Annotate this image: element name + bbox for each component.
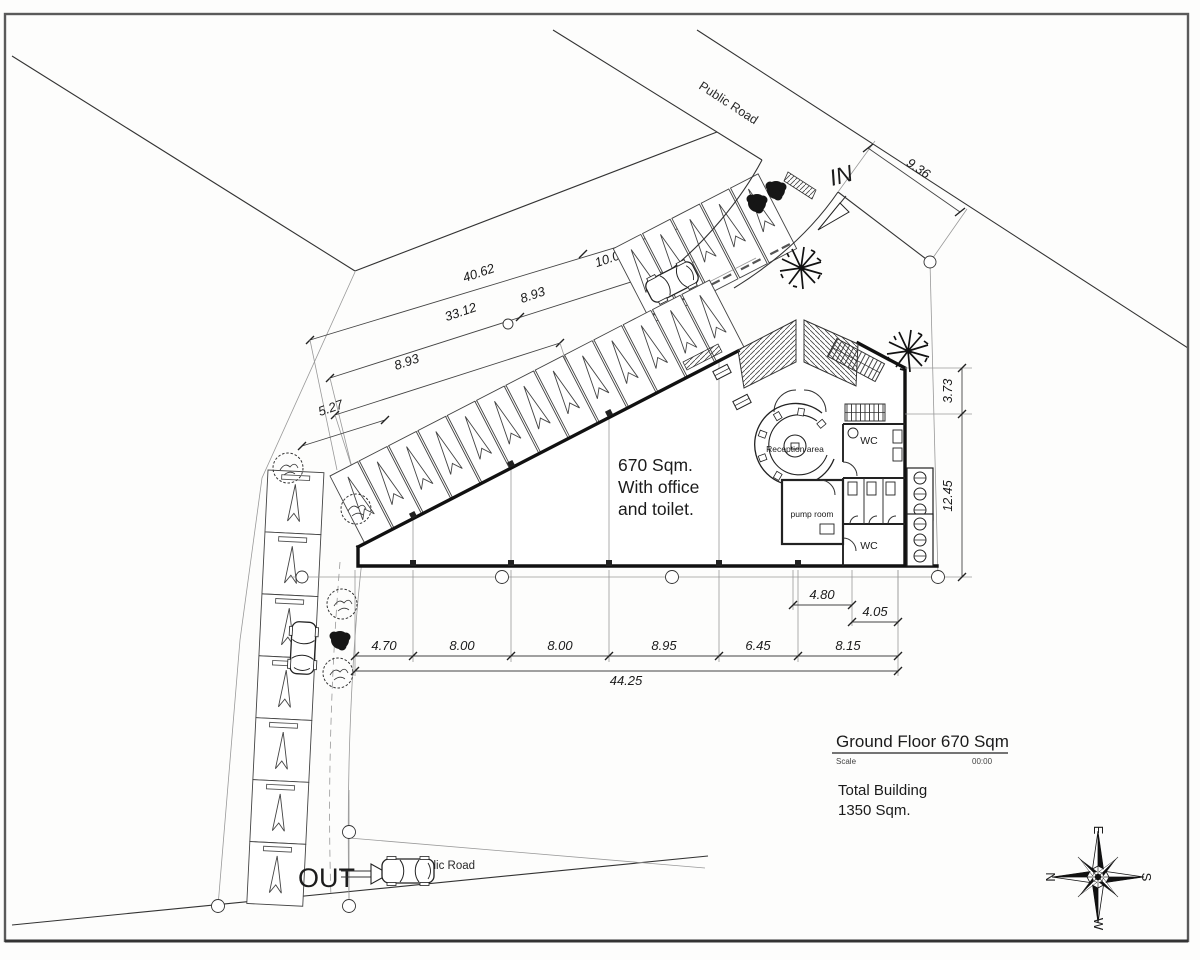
car-exit	[382, 857, 434, 886]
site-plan-drawing: 40.62 10.00 33.12 8.93 8.93 5.27 9.36	[0, 0, 1200, 960]
public-road-bottom	[12, 838, 708, 925]
dim-3-73: 3.73	[941, 379, 955, 403]
dim-8-15: 8.15	[835, 638, 861, 653]
dim-8-93-a: 8.93	[518, 283, 548, 306]
dim-8-00-a: 8.00	[449, 638, 475, 653]
stairs-right	[845, 404, 885, 421]
dimension-road-frontage: 9.36	[838, 141, 967, 262]
dim-5-27: 5.27	[316, 396, 346, 419]
dim-6-45: 6.45	[745, 638, 771, 653]
dim-4-70: 4.70	[371, 638, 397, 653]
pump-room-label: pump room	[791, 509, 834, 519]
title-block: Ground Floor 670 Sqm Scale 00:00 Total B…	[832, 732, 1009, 819]
dim-9-36: 9.36	[904, 155, 934, 182]
area-note-line3: and toilet.	[618, 499, 694, 519]
dim-44-25: 44.25	[610, 673, 643, 688]
dim-33-12: 33.12	[443, 299, 479, 324]
reception-label: Reception area	[766, 444, 824, 454]
dim-8-93-b: 8.93	[392, 350, 422, 373]
wc-lower-label: WC	[860, 540, 878, 552]
scale-label: Scale	[836, 757, 857, 766]
area-note-line1: 670 Sqm.	[618, 455, 693, 475]
sheet-title: Ground Floor 670 Sqm	[836, 732, 1009, 751]
total-building-label: Total Building	[838, 782, 927, 799]
compass-left-letter: N	[1043, 872, 1058, 881]
dim-8-95: 8.95	[651, 638, 677, 653]
total-building-area: 1350 Sqm.	[838, 802, 911, 819]
in-label: IN	[827, 160, 856, 191]
area-note-line2: With office	[618, 477, 699, 497]
out-label: OUT	[298, 863, 355, 893]
wc-upper-label: WC	[860, 435, 878, 447]
car-left-lane	[287, 621, 319, 674]
drawing-sheet: 40.62 10.00 33.12 8.93 8.93 5.27 9.36	[0, 0, 1200, 960]
compass-right-letter: S	[1139, 873, 1154, 882]
dim-4-80: 4.80	[809, 587, 835, 602]
dim-12-45: 12.45	[941, 480, 955, 511]
dim-8-00-b: 8.00	[547, 638, 573, 653]
public-road-top	[12, 30, 1188, 348]
dimension-chain-bottom: 4.70 8.00 8.00 8.95 6.45 8.15 44.25 4.80…	[290, 570, 940, 688]
area-note: 670 Sqm. With office and toilet.	[618, 455, 699, 519]
compass-top-letter: E	[1091, 826, 1106, 835]
parking-strip-left	[247, 470, 362, 906]
public-road-top-label: Public Road	[696, 79, 760, 127]
dim-40-62: 40.62	[461, 260, 497, 285]
compass-rose: E N S W	[1043, 826, 1154, 931]
compass-bottom-letter: W	[1091, 918, 1106, 931]
dim-4-05: 4.05	[862, 604, 888, 619]
scale-value: 00:00	[972, 757, 993, 766]
offset-dimensions: 4.80 4.05	[789, 570, 902, 626]
